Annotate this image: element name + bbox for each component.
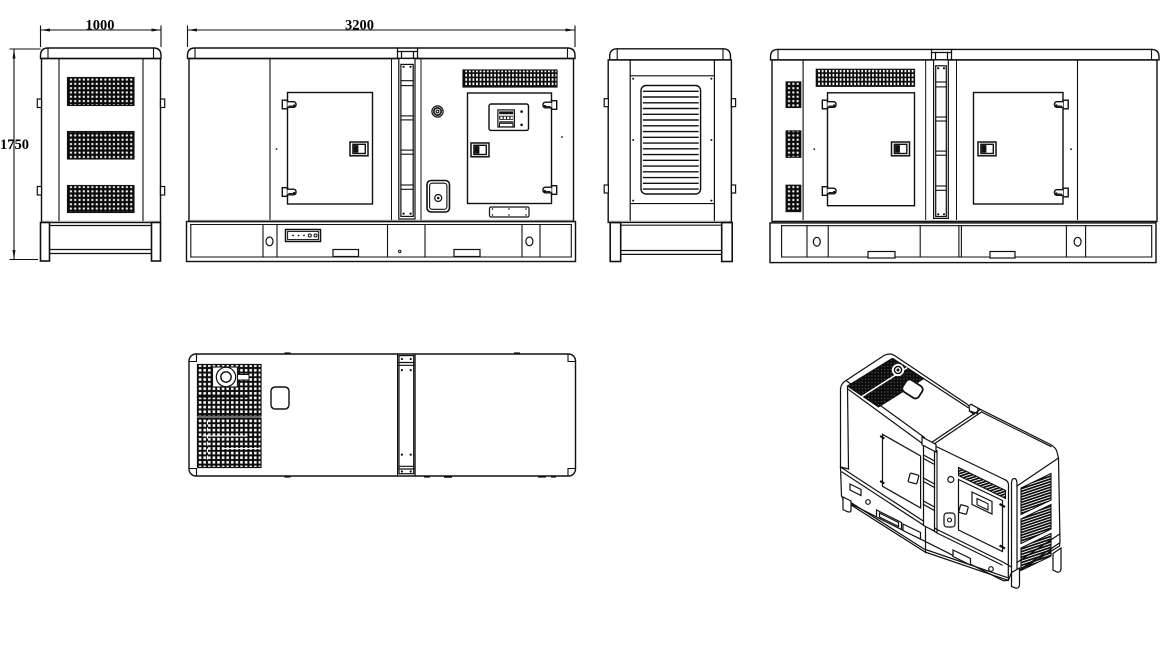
svg-text:3200: 3200	[345, 18, 374, 34]
svg-text:1000: 1000	[86, 18, 115, 34]
svg-text:1750: 1750	[0, 137, 29, 153]
